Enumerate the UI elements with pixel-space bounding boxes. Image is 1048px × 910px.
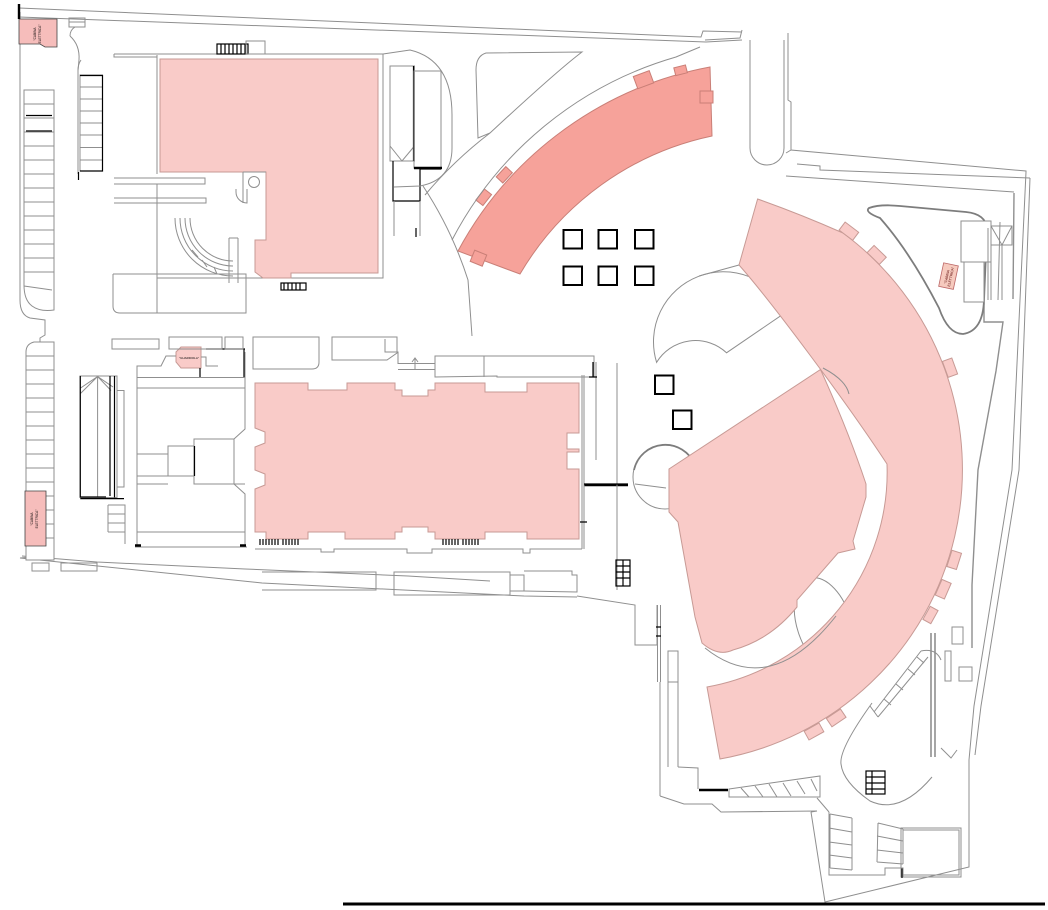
svg-text:ELETTRICA": ELETTRICA" <box>38 25 42 44</box>
svg-text:"CABINA: "CABINA <box>30 512 34 526</box>
svg-text:"GUARDIOLA": "GUARDIOLA" <box>179 356 199 360</box>
svg-text:ELETTRICA": ELETTRICA" <box>35 510 39 529</box>
svg-text:"CABINA: "CABINA <box>33 27 37 41</box>
